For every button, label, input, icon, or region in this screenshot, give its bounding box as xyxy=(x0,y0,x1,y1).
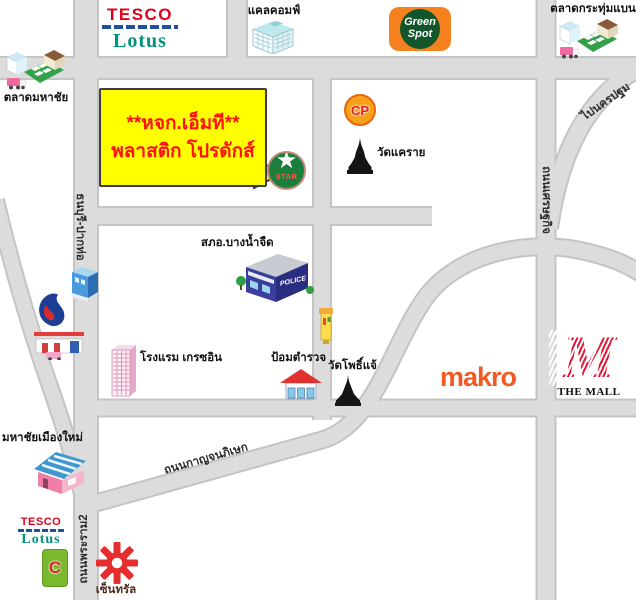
road-label-setthakit: ถนนเศรษฐกิจ xyxy=(537,166,555,234)
police-box-icon xyxy=(279,367,323,408)
central-flower-icon xyxy=(95,541,139,590)
callout-line-2: พลาสติก โปรดักส์ xyxy=(111,142,254,161)
green-spot-logo: Green Spot xyxy=(389,7,451,51)
star-icon: ★ xyxy=(269,151,304,173)
hotel-building-icon xyxy=(104,342,138,405)
calcomp-label: แคลคอมฟ์ xyxy=(236,5,312,18)
tesco-wordmark: TESCO xyxy=(14,517,68,528)
hotel-label: โรงแรม เกรซอิน xyxy=(140,352,222,365)
tesco-wordmark: TESCO xyxy=(96,6,184,23)
callout-line-1: **หจก.เอ็มที** xyxy=(127,114,240,133)
green-spot-text-2: Spot xyxy=(408,29,432,41)
talad-krathum-baen-market-icon xyxy=(557,17,619,68)
police-station-icon: POLICE xyxy=(236,250,314,309)
wat-khrai-label: วัดแคราย xyxy=(377,147,425,160)
road-label-rama2: ถนนพระราม2 xyxy=(75,514,93,583)
tesco-dashes-icon xyxy=(102,25,178,29)
green-spot-circle: Green Spot xyxy=(400,9,440,49)
star-petrol-logo: ★ STAR xyxy=(267,151,306,190)
wat-pho-chae-label: วัดโพธิ์แจ้ xyxy=(328,360,377,373)
lotus-wordmark: Lotus xyxy=(14,533,68,547)
shrine-icon xyxy=(317,306,335,351)
wat-khrai-temple-icon xyxy=(347,137,373,180)
tesco-lotus-logo-top: TESCO Lotus xyxy=(96,6,184,51)
tesco-lotus-logo-bottom: TESCO Lotus xyxy=(14,517,68,547)
stripes-overlay xyxy=(549,330,629,386)
mahachai-muang-mai-house-icon xyxy=(30,447,90,502)
makro-logo: makro xyxy=(440,362,516,393)
road-label-thonburi-paktho: ธนบุรี-ปากท่อ xyxy=(71,193,89,260)
talad-krathum-baen-label: ตลาดกระทุ่มแบน xyxy=(550,3,636,16)
cp-logo: CP xyxy=(344,94,376,126)
police-station-label: สภอ.บางน้ำจืด xyxy=(201,237,274,250)
big-c-logo: C xyxy=(42,549,68,587)
police-box-label: ป้อมตำรวจ xyxy=(271,352,326,365)
ptt-station-icon xyxy=(22,264,108,365)
calcomp-building-icon xyxy=(247,20,299,59)
mahachai-muang-mai-label: มหาชัยเมืองใหม่ xyxy=(2,432,83,445)
star-wordmark: STAR xyxy=(269,172,304,181)
the-mall-monogram: M xyxy=(549,330,629,386)
talad-mahachai-label: ตลาดมหาชัย xyxy=(0,92,72,105)
wat-pho-chae-temple-icon xyxy=(334,374,362,411)
the-mall-logo: M THE MALL xyxy=(549,330,629,398)
street-map: ธนบุรี-ปากท่อ ถนนพระราม2 ถนนเศรษฐกิจ ไปน… xyxy=(0,0,636,600)
lotus-wordmark: Lotus xyxy=(96,31,184,51)
central-label: เซ็นทรัล xyxy=(88,584,144,597)
business-callout: **หจก.เอ็มที** พลาสติก โปรดักส์ xyxy=(99,88,267,187)
